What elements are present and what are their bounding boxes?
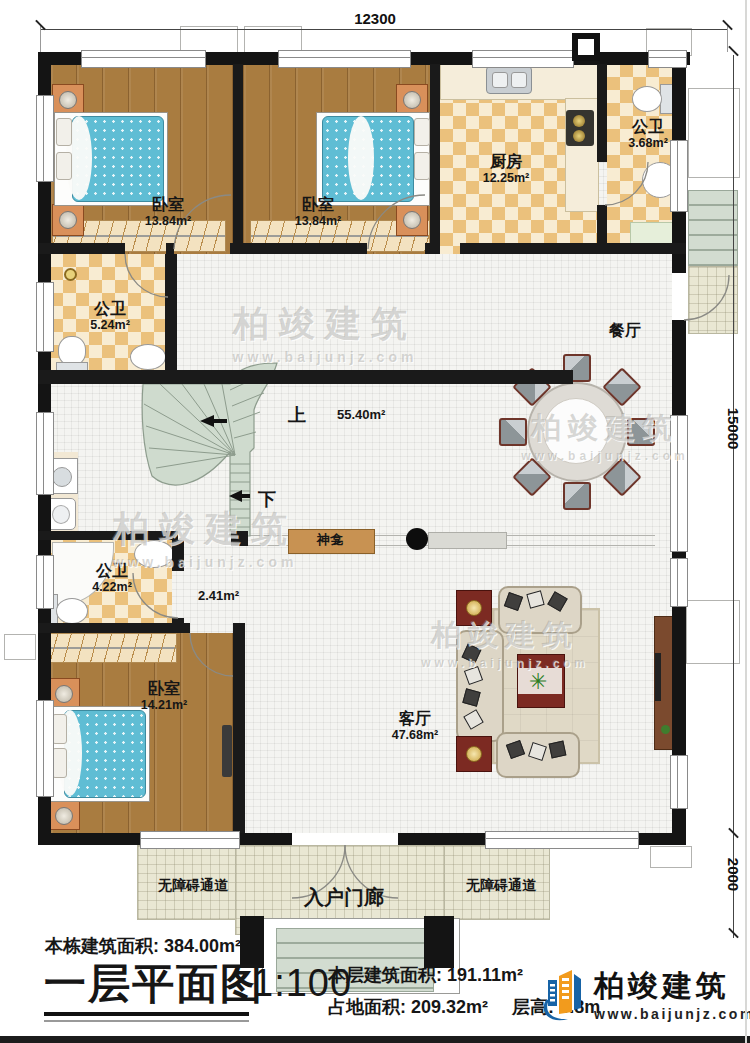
table-lamp bbox=[466, 746, 482, 762]
wall bbox=[637, 833, 686, 845]
plant: ✳ bbox=[529, 669, 547, 695]
wall bbox=[409, 52, 472, 65]
room-label-living: 客厅 47.68m² bbox=[392, 710, 439, 743]
nightstand bbox=[396, 204, 428, 236]
corridor-area-label: 2.41m² bbox=[198, 588, 239, 603]
pillow bbox=[52, 748, 67, 778]
floor-plan-sheet: ✳ bbox=[0, 0, 750, 1043]
wall bbox=[672, 210, 686, 273]
floor-area-value: 191.11m² bbox=[447, 965, 523, 985]
room-name: 卧室 bbox=[145, 196, 192, 214]
partition bbox=[38, 243, 125, 254]
window bbox=[278, 50, 411, 68]
window bbox=[670, 558, 688, 607]
pillow bbox=[56, 118, 72, 146]
washer-drum bbox=[52, 467, 72, 487]
partition bbox=[166, 243, 174, 254]
wall bbox=[398, 833, 485, 845]
room-label-bath-mid: 公卫 5.24m² bbox=[90, 300, 130, 333]
exterior-landing bbox=[688, 266, 738, 334]
partition bbox=[425, 243, 440, 254]
title-underline-2 bbox=[44, 1020, 249, 1022]
dining-chair bbox=[499, 418, 527, 446]
kitchen-sink bbox=[486, 66, 532, 94]
partition bbox=[38, 623, 190, 633]
dimension-width: 12300 bbox=[340, 10, 410, 27]
kitchen-flue bbox=[572, 33, 600, 61]
sink-bath-low bbox=[134, 540, 174, 568]
shower-head bbox=[64, 268, 77, 281]
wall bbox=[38, 607, 51, 700]
stairs-down-label: 下 bbox=[258, 487, 276, 511]
room-name: 厨房 bbox=[483, 153, 530, 171]
burner bbox=[573, 115, 585, 127]
toilet-bath-top bbox=[632, 86, 662, 112]
wall bbox=[672, 605, 686, 755]
extension-line bbox=[40, 25, 41, 52]
exterior-steps bbox=[688, 190, 738, 266]
room-name: 公卫 bbox=[92, 562, 132, 580]
pillow bbox=[414, 152, 430, 180]
ramp-right-label: 无障碍通道 bbox=[466, 877, 536, 895]
building-area-label: 本栋建筑面积: bbox=[45, 936, 159, 956]
nightstand bbox=[52, 204, 84, 236]
title-underline bbox=[44, 1012, 249, 1016]
burner bbox=[573, 130, 585, 142]
ramp-left-label: 无障碍通道 bbox=[158, 877, 228, 895]
window-ledge bbox=[4, 634, 36, 660]
shrine-label: 神龛 bbox=[317, 531, 343, 549]
brand-logo-icon bbox=[536, 966, 588, 1024]
coffee-table: ✳ bbox=[517, 654, 565, 708]
dimension-height: 15000 bbox=[725, 399, 742, 459]
partition-half-wall bbox=[428, 532, 507, 549]
room-area: 4.22m² bbox=[92, 580, 132, 594]
sofa-cushion bbox=[549, 741, 567, 759]
room-name: 卧室 bbox=[295, 196, 342, 214]
room-label-bedroom1: 卧室 13.84m² bbox=[145, 196, 192, 229]
nightstand bbox=[48, 800, 80, 830]
sink-bowl bbox=[511, 72, 527, 88]
hall-area-label: 55.40m² bbox=[337, 407, 385, 422]
dining-chair bbox=[627, 418, 655, 446]
partition bbox=[38, 370, 573, 384]
table-lamp bbox=[466, 600, 482, 616]
extension-line bbox=[727, 25, 728, 52]
partition bbox=[460, 243, 686, 254]
window bbox=[81, 50, 206, 68]
partition bbox=[230, 243, 367, 254]
site-area-label: 占地面积: bbox=[328, 997, 406, 1017]
window bbox=[670, 140, 688, 212]
window bbox=[648, 50, 687, 68]
tv-bedroom3 bbox=[222, 725, 232, 777]
room-area: 47.68m² bbox=[392, 728, 439, 742]
window bbox=[670, 415, 688, 552]
porch-label: 入户门廊 bbox=[304, 884, 384, 911]
column bbox=[406, 528, 428, 550]
dining-table-top bbox=[543, 398, 609, 464]
room-area: 5.24m² bbox=[90, 318, 130, 332]
plan-title: 一层平面图 bbox=[44, 956, 264, 1012]
pillow bbox=[52, 714, 67, 744]
room-label-kitchen: 厨房 12.25m² bbox=[483, 153, 530, 186]
room-label-bedroom2: 卧室 13.84m² bbox=[295, 196, 342, 229]
wall bbox=[38, 180, 51, 282]
window-ledge bbox=[686, 600, 740, 664]
partition bbox=[172, 540, 184, 571]
wall bbox=[38, 833, 140, 845]
room-name: 公卫 bbox=[90, 300, 130, 318]
window bbox=[36, 700, 54, 797]
window bbox=[36, 95, 54, 182]
room-area: 12.25m² bbox=[483, 171, 530, 185]
bed-sheet bbox=[348, 116, 374, 200]
window bbox=[472, 50, 574, 68]
building-area-value: 384.00m² bbox=[164, 936, 241, 956]
room-label-bath-low: 公卫 4.22m² bbox=[92, 562, 132, 595]
room-label-bath-top: 公卫 3.68m² bbox=[628, 118, 668, 151]
pillow bbox=[414, 118, 430, 146]
stove bbox=[566, 110, 594, 146]
wall bbox=[38, 52, 51, 95]
site-area-value: 209.32m² bbox=[411, 997, 488, 1017]
plant-small bbox=[661, 725, 670, 734]
brand-name: 柏竣建筑 bbox=[594, 966, 730, 1007]
partition bbox=[38, 531, 178, 540]
window-ledge bbox=[650, 846, 692, 868]
tv bbox=[655, 653, 661, 701]
sofa-left bbox=[456, 630, 504, 742]
room-name: 卧室 bbox=[141, 680, 188, 698]
wall bbox=[238, 833, 292, 845]
room-area: 13.84m² bbox=[145, 214, 192, 228]
wardrobe-bedroom3 bbox=[50, 633, 177, 663]
sheet-right-border bbox=[745, 0, 747, 1043]
partition bbox=[233, 64, 243, 254]
partition bbox=[231, 531, 248, 546]
room-area: 14.21m² bbox=[141, 698, 188, 712]
window bbox=[36, 282, 54, 352]
partition bbox=[597, 64, 607, 162]
dimension-porch-depth: 2000 bbox=[725, 851, 742, 899]
sink-bowl bbox=[52, 505, 70, 524]
window bbox=[36, 555, 54, 609]
brand-website: www.baijunjz.com bbox=[594, 1006, 750, 1022]
sink-bath-mid bbox=[130, 344, 166, 370]
room-area: 13.84m² bbox=[295, 214, 342, 228]
dimension-line-top bbox=[40, 29, 728, 30]
room-name: 客厅 bbox=[392, 710, 439, 728]
stairs-up-label: 上 bbox=[288, 403, 306, 427]
building-area-line: 本栋建筑面积: 384.00m² bbox=[45, 934, 241, 958]
pillow bbox=[56, 152, 72, 180]
window bbox=[140, 831, 240, 849]
toilet-bath-low bbox=[56, 598, 88, 624]
window bbox=[36, 412, 54, 495]
partition bbox=[165, 254, 177, 375]
room-label-dining: 餐厅 bbox=[609, 322, 641, 340]
partition bbox=[430, 64, 440, 254]
wall bbox=[38, 493, 51, 555]
dining-chair bbox=[563, 482, 591, 510]
floor-area-line: 本层建筑面积: 191.11m² bbox=[328, 963, 523, 987]
window bbox=[485, 831, 639, 849]
porch-column bbox=[424, 916, 454, 968]
window bbox=[670, 755, 688, 809]
room-name: 公卫 bbox=[628, 118, 668, 136]
wall bbox=[672, 320, 686, 415]
room-area: 3.68m² bbox=[628, 136, 668, 150]
room-label-bedroom3: 卧室 14.21m² bbox=[141, 680, 188, 713]
sheet-bottom-border bbox=[0, 1036, 750, 1043]
sink-bowl bbox=[492, 72, 508, 88]
room-name: 餐厅 bbox=[609, 322, 641, 340]
floor-area-label: 本层建筑面积: bbox=[328, 965, 442, 985]
partition bbox=[233, 623, 245, 833]
